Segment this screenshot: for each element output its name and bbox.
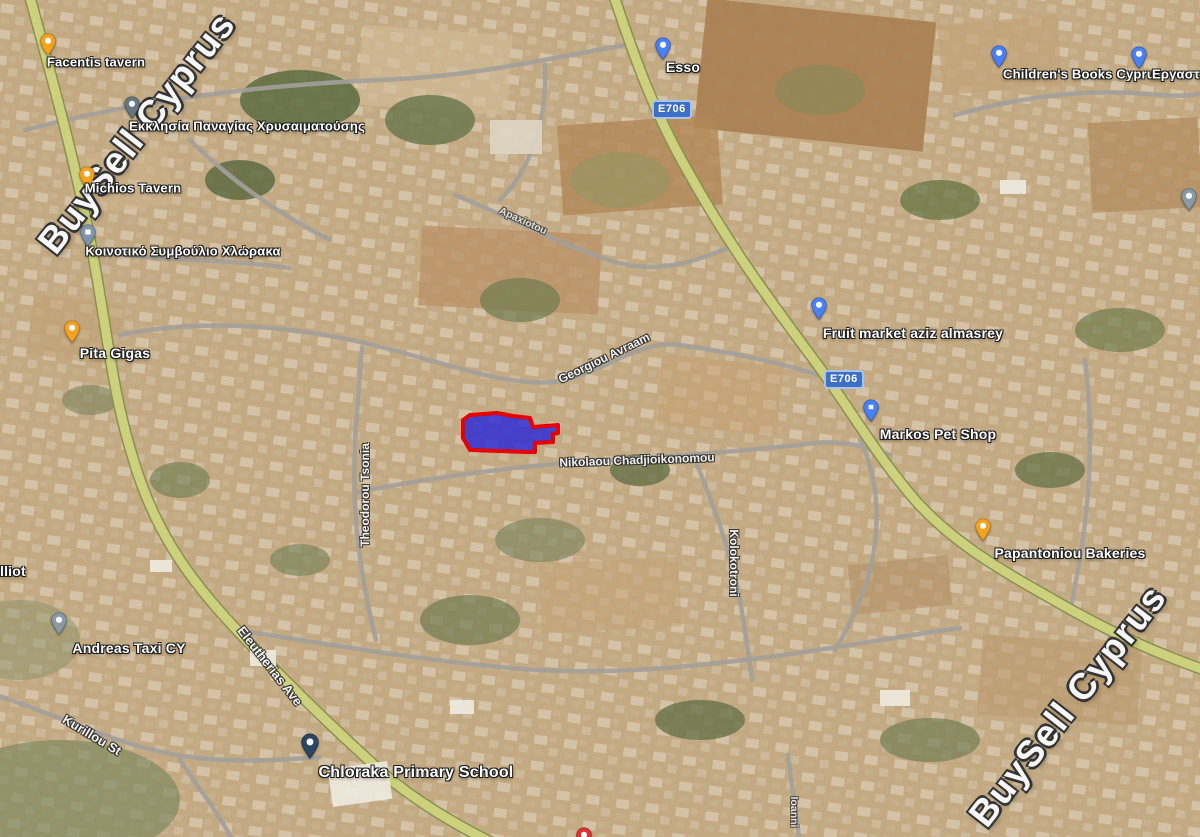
satellite-map[interactable]: BuySell Cyprus BuySell Cyprus E706 E706 … [0,0,1200,837]
poi-label-esso[interactable]: Esso [666,59,700,75]
poi-label-markos-pet-shop[interactable]: Markos Pet Shop [880,426,997,442]
gas-station-pin-icon[interactable] [655,37,671,60]
edge-pin-icon[interactable] [1181,188,1197,211]
poi-label-church[interactable]: Εκκλησία Παναγίας Χρυσαιματούσης [129,119,365,134]
book-store-pin-icon[interactable] [991,45,1007,68]
street-label-kolokotroni: Kolokotroni [727,529,741,596]
poi-label-fruit-market[interactable]: Fruit market aziz almasrey [823,325,1003,341]
poi-label-facentis-tavern[interactable]: Facentis tavern [47,55,145,70]
poi-label-papantoniou-bakeries[interactable]: Papantoniou Bakeries [994,545,1145,561]
route-badge-e706-north: E706 [652,100,692,119]
poi-label-childrens-books[interactable]: Children's Books Cyprus [1003,67,1162,82]
poi-label-michios-tavern[interactable]: Michios Tavern [85,181,181,196]
poi-label-community-council[interactable]: Κοινοτικό Συμβούλιο Χλώρακα [85,244,280,259]
church-pin-icon[interactable] [124,96,140,119]
street-label-ioanni: Ioanni [788,797,800,828]
route-badge-e706-south: E706 [824,370,864,389]
poi-label-andreas-taxi[interactable]: Andreas Taxi CY [72,640,185,656]
grocery-pin-icon[interactable] [811,297,827,320]
poi-label-ergastiri[interactable]: Εργαστήρι [1152,67,1200,82]
poi-label-elliot-partial[interactable]: lliot [0,563,26,579]
bakery-pin-icon[interactable] [975,518,991,541]
pet-shop-pin-icon[interactable] [863,399,879,422]
school-pin-icon[interactable] [301,733,319,759]
poi-label-pita-gigas[interactable]: Pita Gigas [80,345,150,361]
poi-label-primary-school[interactable]: Chloraka Primary School [319,764,514,782]
red-marker-pin-icon[interactable] [576,827,592,837]
taxi-pin-icon[interactable] [51,612,67,635]
pita-restaurant-pin-icon[interactable] [64,320,80,343]
restaurant-pin-icon[interactable] [40,33,56,56]
street-label-theodorou-tsonia: Theodorou Tsonia [358,443,372,547]
